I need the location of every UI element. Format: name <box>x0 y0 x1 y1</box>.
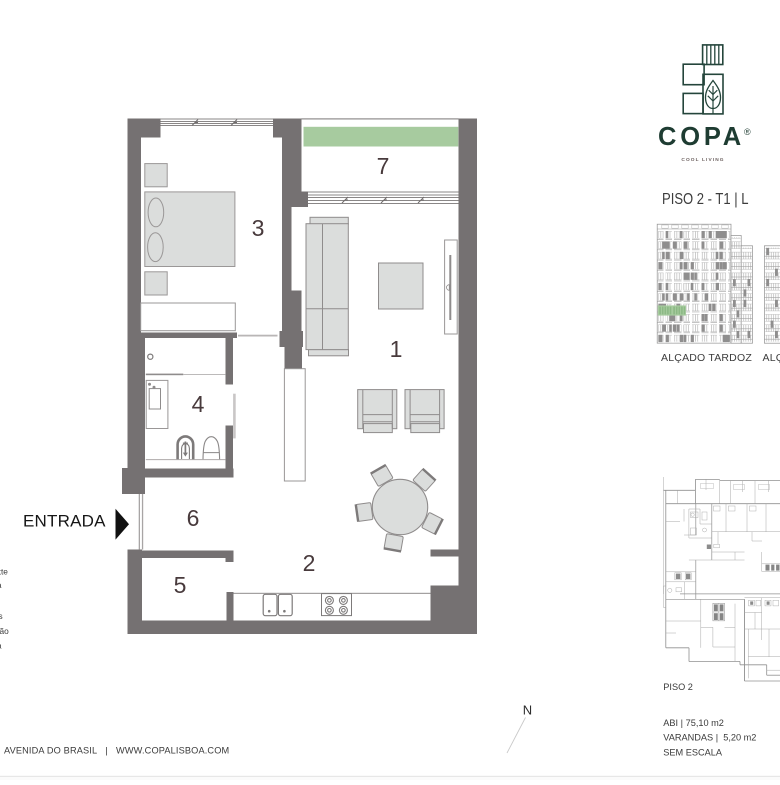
svg-text:6: 6 <box>187 505 200 531</box>
svg-text:PISO 2: PISO 2 <box>663 682 693 692</box>
svg-text:4: 4 <box>192 391 205 417</box>
svg-text:ENTRADA: ENTRADA <box>23 512 106 531</box>
svg-text:ABI | 75,10 m2: ABI | 75,10 m2 <box>663 718 724 728</box>
svg-text:Kitchenette: Kitchenette <box>0 566 8 576</box>
svg-text:Arrumos: Arrumos <box>0 611 3 621</box>
svg-text:®: ® <box>744 127 751 137</box>
svg-text:ALÇADO: ALÇADO <box>763 352 780 364</box>
svg-text:Circulação: Circulação <box>0 626 9 636</box>
svg-text:COPA: COPA <box>658 123 745 151</box>
svg-text:ALÇADO TARDOZ: ALÇADO TARDOZ <box>661 352 752 364</box>
svg-text:VARANDAS | 5,20 m2: VARANDAS | 5,20 m2 <box>663 733 756 743</box>
svg-text:1: 1 <box>390 336 403 362</box>
svg-text:AVENIDA DO BRASIL | WWW.CO: AVENIDA DO BRASIL | WWW.COPALISBOA.COM <box>4 746 229 756</box>
svg-text:N: N <box>523 703 532 718</box>
svg-text:SEM ESCALA: SEM ESCALA <box>663 748 723 758</box>
svg-text:7: 7 <box>377 153 390 179</box>
svg-text:PISO 2 - T1 | L: PISO 2 - T1 | L <box>662 191 749 208</box>
svg-text:2: 2 <box>303 550 316 576</box>
svg-text:3: 3 <box>252 215 265 241</box>
svg-text:COOL LIVING: COOL LIVING <box>681 157 724 163</box>
svg-text:5: 5 <box>174 572 187 598</box>
